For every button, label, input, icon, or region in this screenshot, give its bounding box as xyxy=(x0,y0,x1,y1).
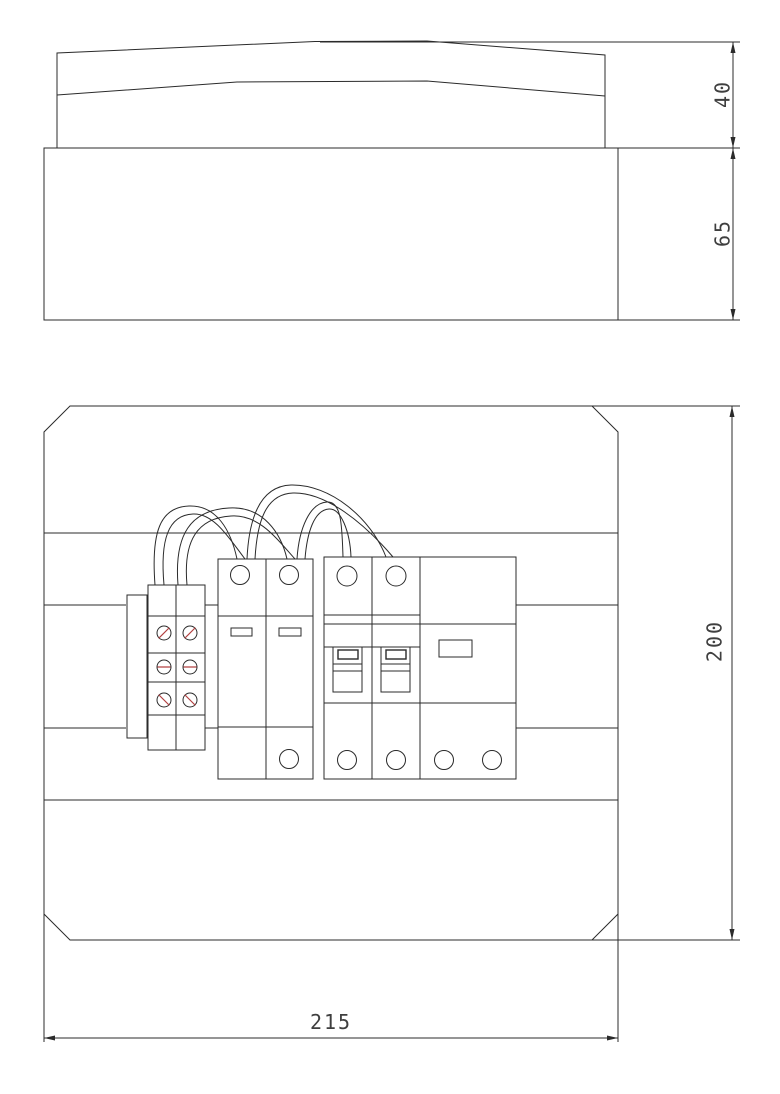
dimension-lid-height: 40 xyxy=(320,42,740,148)
dimension-200-label: 200 xyxy=(703,620,727,662)
dimension-panel-width: 215 xyxy=(44,914,618,1042)
circuit-breaker-module xyxy=(324,557,516,779)
arrowhead-up xyxy=(730,406,735,417)
terminal-block xyxy=(148,585,205,750)
jumper-cable-spd-to-breaker-1 xyxy=(247,485,393,559)
enclosure-base-outline xyxy=(44,148,618,320)
enclosure-lid-outline xyxy=(57,41,605,148)
arrowhead-down xyxy=(731,309,736,320)
arrowhead-right xyxy=(607,1036,618,1041)
arrowhead-down xyxy=(730,929,735,940)
front-view: 200 215 xyxy=(44,406,740,1042)
arrowhead-left xyxy=(44,1036,55,1041)
dimension-215-label: 215 xyxy=(310,1010,352,1034)
toggle-handle xyxy=(338,650,358,659)
enclosure-lid-inner-line xyxy=(57,81,605,96)
dimension-65-label: 65 xyxy=(711,219,735,247)
dimension-base-height: 65 xyxy=(618,148,740,320)
toggle-handle xyxy=(386,650,406,659)
dimension-40-label: 40 xyxy=(711,80,735,108)
arrowhead-up xyxy=(731,42,736,53)
arrowhead-up xyxy=(731,148,736,159)
dimension-panel-height: 200 xyxy=(592,406,740,940)
drawing-canvas: 40 65 xyxy=(0,0,780,1094)
technical-drawing-sheet: 40 65 xyxy=(0,0,780,1094)
terminal-mounting-plate xyxy=(127,595,147,738)
side-view: 40 65 xyxy=(44,41,740,320)
arrowhead-down xyxy=(731,137,736,148)
surge-protector-module xyxy=(218,559,313,779)
